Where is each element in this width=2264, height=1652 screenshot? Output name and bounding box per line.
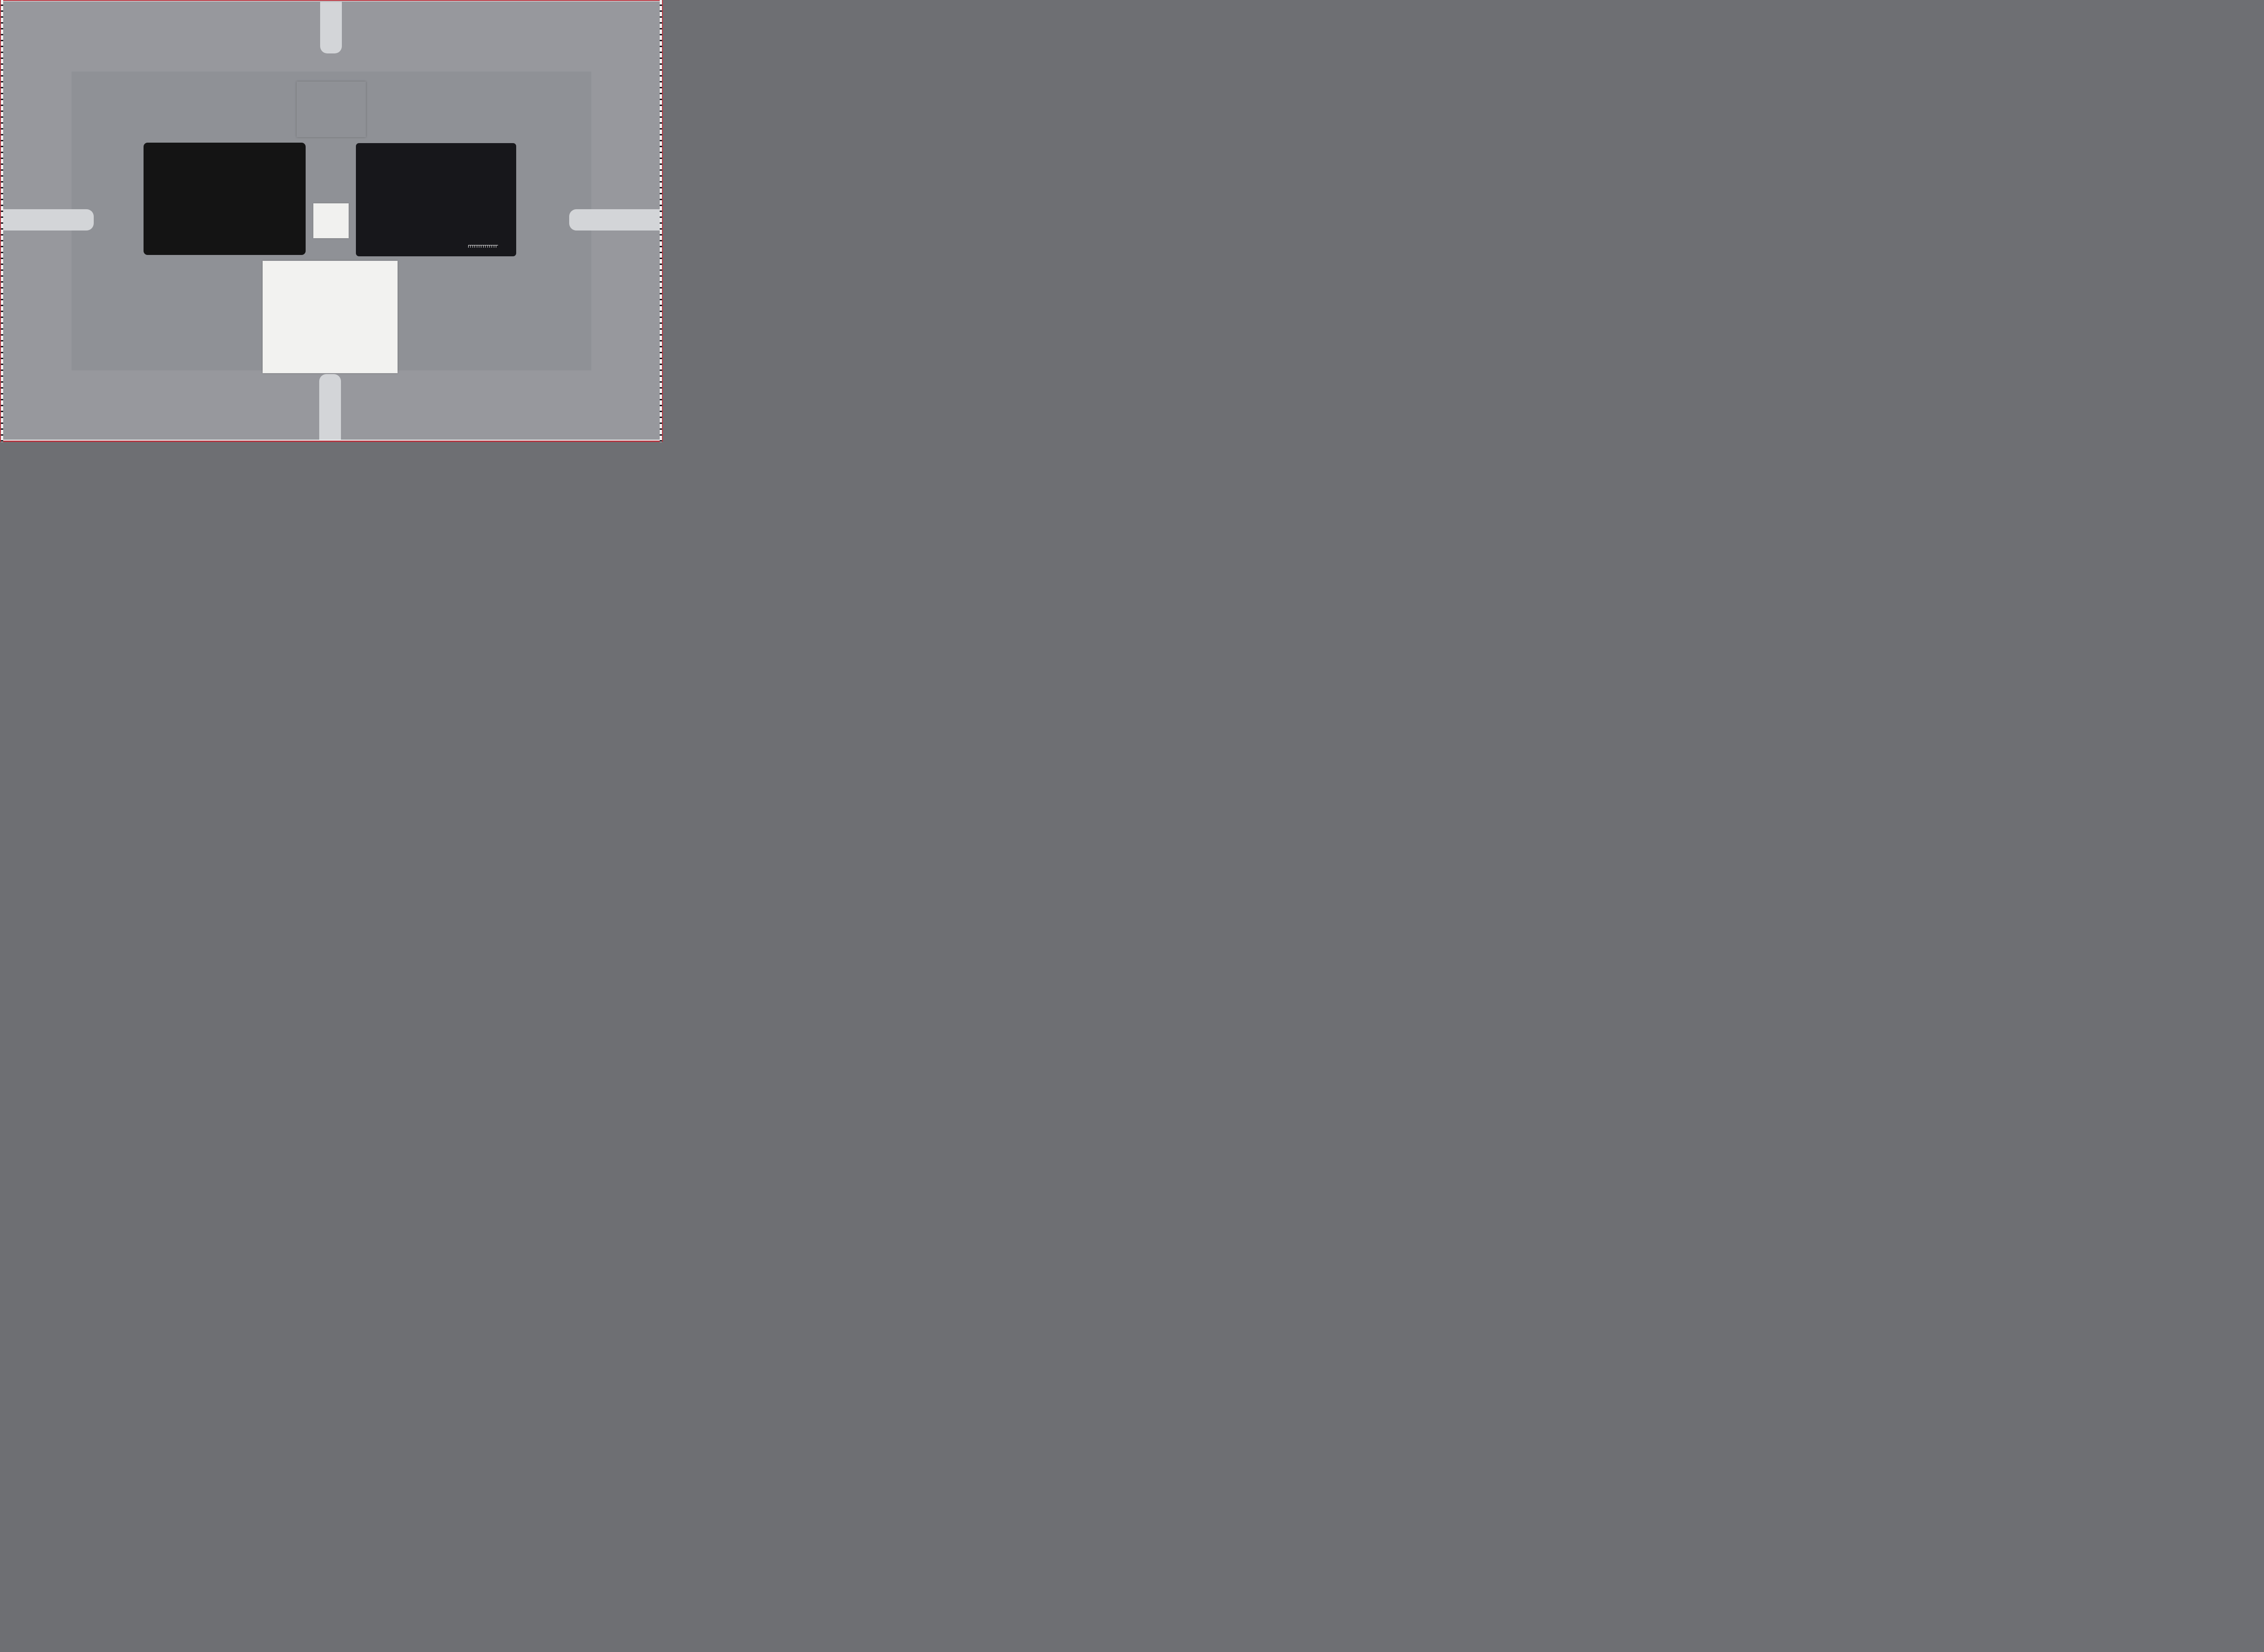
edge-ruler-left: [1, 0, 3, 442]
sg-mm-ruler: [468, 245, 507, 252]
red-edge-top: [0, 0, 663, 1]
registration-tab-left: [2, 209, 94, 231]
edge-ruler-right: [660, 0, 662, 442]
red-edge-bottom: [0, 441, 663, 442]
colorchecker-patch-grid: [151, 149, 298, 241]
frequency-wedge-chart: [263, 261, 398, 373]
colorchecker-label: [144, 247, 306, 252]
portrait-test-photo: [297, 82, 366, 137]
red-edge-right: [662, 0, 663, 442]
registration-tab-right: [569, 209, 661, 231]
center-resolution-target: [313, 203, 349, 238]
registration-tab-top: [320, 2, 342, 53]
sg-patch-grid: [369, 154, 510, 250]
ruler-ticks: [468, 245, 498, 248]
test-chart-scene: [0, 0, 663, 442]
xrite-logo: [224, 247, 225, 252]
colorchecker-sg-chart: [356, 143, 516, 256]
colorchecker-classic-chart: [144, 143, 306, 255]
registration-tab-bottom: [319, 374, 341, 440]
